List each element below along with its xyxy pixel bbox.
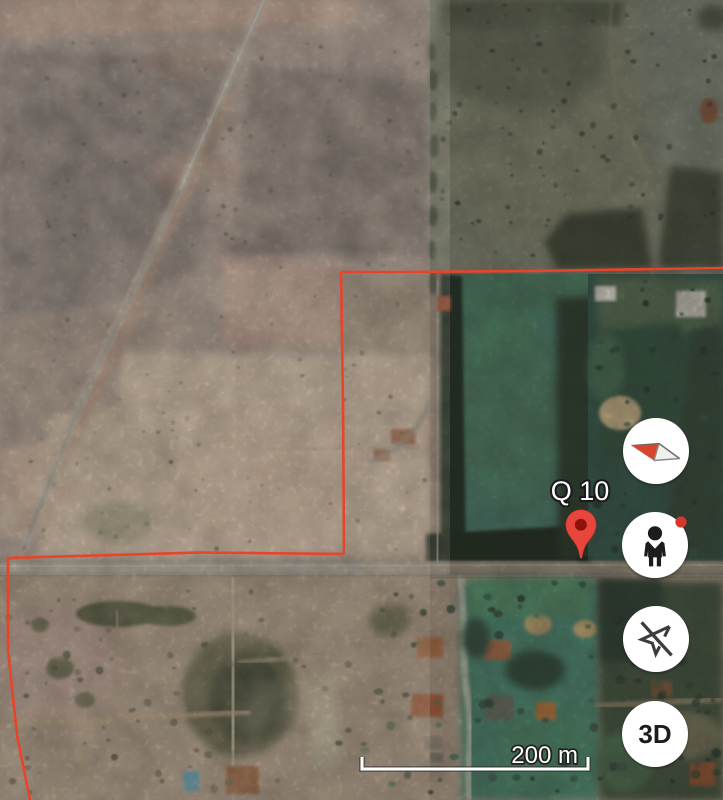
svg-text:3D: 3D	[638, 719, 671, 749]
svg-text:200 m: 200 m	[511, 742, 578, 769]
svg-text:Q 10: Q 10	[551, 476, 610, 506]
